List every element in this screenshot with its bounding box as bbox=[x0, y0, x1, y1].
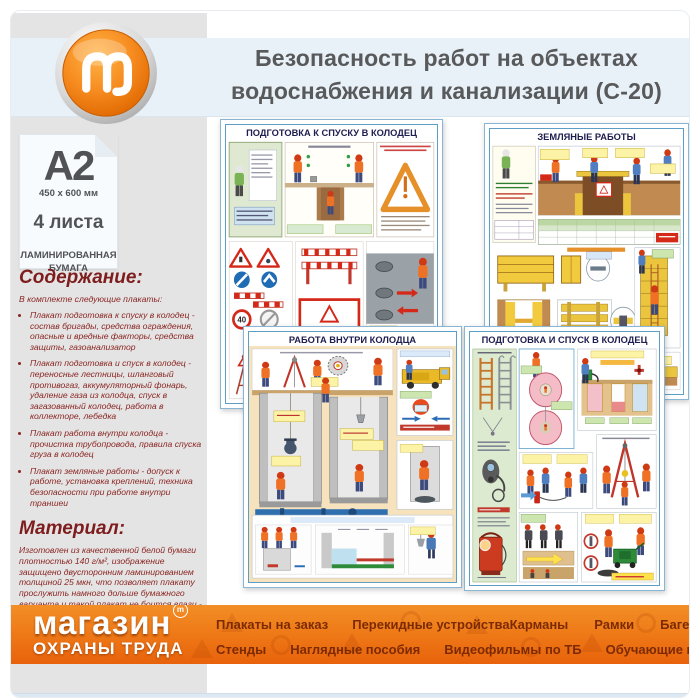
shop-logo-icon[interactable] bbox=[54, 21, 158, 125]
page-title-line1: Безопасность работ на объектах bbox=[204, 42, 689, 75]
footer-menu-row1: Плакаты на заказ Перекидные устройства К… bbox=[216, 614, 679, 634]
material-heading: Материал: bbox=[19, 518, 204, 540]
menu-item-obuchayushchie-programmy[interactable]: Обучающие программы bbox=[606, 642, 689, 657]
trademark-m-icon: m bbox=[173, 605, 188, 618]
footer-menu-row2: Стенды Наглядные пособия Видеофильмы по … bbox=[216, 639, 679, 659]
poster-artwork-3 bbox=[249, 346, 456, 582]
contents-item: Плакат работа внутри колодца - прочистка… bbox=[30, 428, 204, 460]
menu-item-stendy[interactable]: Стенды bbox=[216, 642, 266, 657]
footer-bar: магазин m ОХРАНЫ ТРУДА Плакаты на заказ … bbox=[11, 605, 689, 664]
poster-title: ЗЕМЛЯНЫЕ РАБОТЫ bbox=[490, 129, 683, 143]
menu-item-baget[interactable]: Багет bbox=[660, 617, 689, 632]
footer-logo-line2: ОХРАНЫ ТРУДА bbox=[33, 639, 184, 659]
poster-title: РАБОТА ВНУТРИ КОЛОДЦА bbox=[249, 332, 456, 346]
format-card: А2 450 x 600 мм 4 листа ЛАМИНИРОВАННАЯ Б… bbox=[19, 134, 118, 269]
poster-title: ПОДГОТОВКА И СПУСК В КОЛОДЕЦ bbox=[470, 332, 659, 346]
pattern-triangle bbox=[191, 639, 213, 658]
page-title-line2: водоснабжения и канализации (С-20) bbox=[204, 75, 689, 108]
footer-menu: Плакаты на заказ Перекидные устройства К… bbox=[216, 614, 679, 659]
contents-item: Плакат подготовка и спуск в колодец - пе… bbox=[30, 358, 204, 422]
contents-item: Плакат земляные работы - допуск к работе… bbox=[30, 466, 204, 508]
menu-item-ramki[interactable]: Рамки bbox=[594, 617, 634, 632]
poster-thumb-podgotovka-i-spusk[interactable]: ПОДГОТОВКА И СПУСК В КОЛОДЕЦ bbox=[464, 326, 665, 591]
sheet-count: 4 листа bbox=[20, 212, 117, 234]
poster-title: ПОДГОТОВКА К СПУСКУ В КОЛОДЕЦ bbox=[226, 125, 437, 139]
menu-item-videofilmy-po-tb[interactable]: Видеофильмы по ТБ bbox=[444, 642, 581, 657]
contents-heading: Содержание: bbox=[19, 267, 204, 289]
format-dimensions: 450 x 600 мм bbox=[20, 188, 117, 199]
menu-item-naglyadnye-posobiya[interactable]: Наглядные пособия bbox=[290, 642, 420, 657]
contents-intro: В комплекте следующие плакаты: bbox=[19, 294, 204, 304]
poster-thumb-rabota-vnutri-kolodtsa[interactable]: РАБОТА ВНУТРИ КОЛОДЦА bbox=[243, 326, 462, 588]
contents-item: Плакат подготовка к спуску в колодец - с… bbox=[30, 310, 204, 352]
menu-item-plakaty-na-zakaz[interactable]: Плакаты на заказ bbox=[216, 617, 328, 632]
menu-item-perekidnye-ustroystva[interactable]: Перекидные устройства bbox=[352, 617, 509, 632]
page-title: Безопасность работ на объектах водоснабж… bbox=[204, 42, 689, 108]
product-page: Безопасность работ на объектах водоснабж… bbox=[10, 10, 690, 698]
footer-logo-line1: магазин m bbox=[33, 607, 171, 638]
page-fold-flap bbox=[95, 135, 117, 157]
speed-limit-sign-label: 40 bbox=[237, 316, 246, 325]
contents-list: Плакат подготовка к спуску в колодец - с… bbox=[19, 310, 204, 508]
sidebar-description: Содержание: В комплекте следующие плакат… bbox=[19, 267, 204, 621]
bottom-section-strip bbox=[11, 693, 689, 698]
footer-shop-logo[interactable]: магазин m ОХРАНЫ ТРУДА bbox=[33, 607, 184, 659]
menu-item-karmany[interactable]: Карманы bbox=[510, 617, 569, 632]
poster-artwork-4 bbox=[470, 346, 659, 585]
